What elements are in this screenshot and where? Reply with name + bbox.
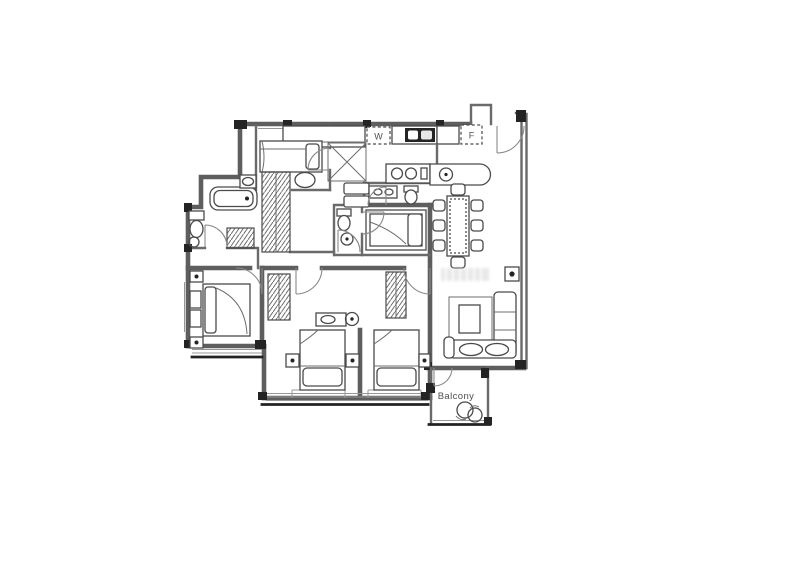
appliance-stack bbox=[344, 183, 369, 207]
nightstand bbox=[190, 271, 203, 282]
pillow bbox=[408, 214, 422, 246]
pillow bbox=[377, 368, 416, 386]
bathroom-door-arc bbox=[205, 225, 227, 247]
dining-area bbox=[433, 184, 483, 268]
sofa-armrest bbox=[444, 337, 454, 358]
cooktop bbox=[386, 164, 430, 183]
balcony-door-arc bbox=[434, 368, 452, 386]
dresser bbox=[190, 310, 201, 327]
bathroom-3 bbox=[337, 209, 360, 252]
dresser bbox=[190, 291, 201, 308]
bedroom2-door-arc bbox=[296, 268, 322, 294]
washbasin bbox=[240, 175, 256, 188]
vanity bbox=[316, 313, 346, 326]
shaft-x-box bbox=[328, 143, 366, 181]
column-with-dot bbox=[505, 267, 519, 281]
bedroom3-door-arc bbox=[404, 268, 430, 294]
floor-plan-drawing: W F bbox=[0, 0, 800, 566]
closet-hatched bbox=[227, 228, 254, 248]
toilet bbox=[404, 186, 418, 204]
entry-foyer bbox=[497, 126, 524, 153]
living-room bbox=[444, 292, 516, 358]
washer-label: W bbox=[374, 132, 383, 142]
toilet bbox=[337, 209, 351, 231]
faint-watermark bbox=[441, 268, 489, 281]
nightstand bbox=[346, 354, 359, 367]
study-room bbox=[362, 210, 426, 250]
nightstand bbox=[286, 354, 299, 367]
entry-door-arc bbox=[497, 126, 524, 153]
master-bedroom bbox=[190, 268, 262, 348]
balcony-chairs bbox=[456, 402, 482, 422]
nightstand bbox=[419, 354, 430, 367]
bathroom-2 bbox=[368, 186, 418, 205]
bedroom-2 bbox=[268, 268, 359, 390]
toilet bbox=[189, 211, 204, 238]
hall-wardrobe bbox=[262, 172, 290, 252]
stool bbox=[295, 173, 315, 188]
breakfast-bar bbox=[430, 164, 490, 185]
coffee-table bbox=[459, 305, 480, 333]
bathtub bbox=[210, 187, 257, 210]
floor-plan-page: W F bbox=[0, 0, 800, 566]
floor-drain bbox=[189, 237, 199, 247]
nightstand bbox=[190, 337, 203, 348]
fridge-label: F bbox=[469, 131, 475, 141]
pillow bbox=[205, 287, 216, 333]
pillow bbox=[303, 368, 342, 386]
balcony: Balcony bbox=[426, 368, 492, 425]
balcony-label: Balcony bbox=[438, 391, 475, 402]
